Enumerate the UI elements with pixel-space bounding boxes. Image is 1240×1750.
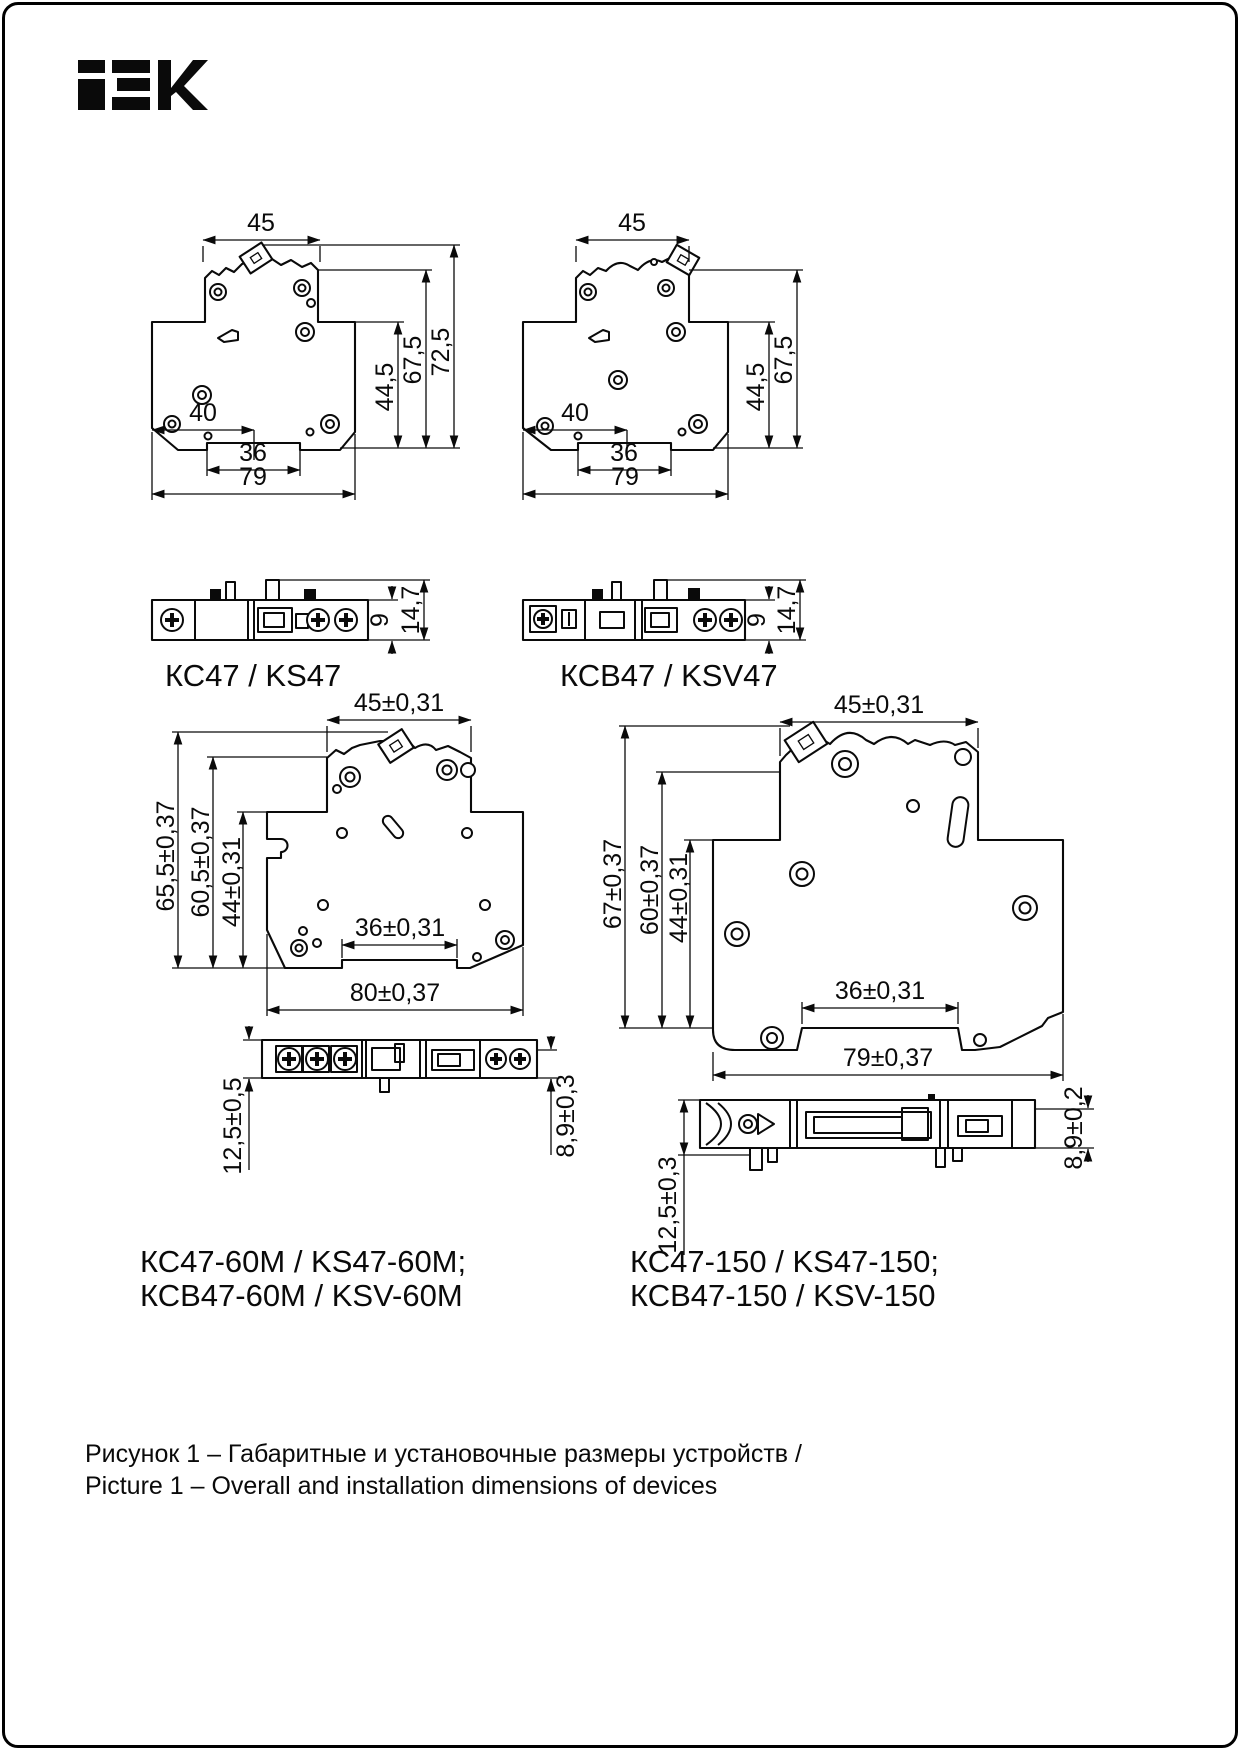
- figure-kc47-150: 45±0,31 67±0,37 60±0,37 44±0,31 36±0,31 …: [599, 691, 1094, 1313]
- dim-lower-height: 44±0,31: [218, 837, 246, 927]
- dim-side-depth: 8,9±0,2: [1060, 1086, 1088, 1169]
- figure-name-kc47-150-line2: КСВ47-150 / KSV-150: [630, 1278, 936, 1313]
- dim-top-width: 45±0,31: [834, 691, 924, 719]
- dim-side-depth: 8,9±0,3: [552, 1074, 580, 1157]
- dim-center-offset: 40: [561, 399, 589, 427]
- dim-total-height: 72,5: [427, 328, 455, 377]
- dim-top-width: 45: [618, 209, 646, 237]
- dim-top-width: 45: [247, 209, 275, 237]
- dim-top-width: 45±0,31: [354, 689, 444, 717]
- dim-lower-height: 44,5: [371, 363, 399, 412]
- dim-side-height: 12,5±0,3: [654, 1156, 682, 1253]
- dim-side-body: 9: [366, 613, 394, 627]
- figure-name-ksv47: КСВ47 / KSV47: [560, 658, 778, 693]
- dim-side-height: 12,5±0,5: [219, 1077, 247, 1174]
- figure-kc47-60m: 45±0,31 65,5±0,37 60,5±0,37 44±0,31 36±0…: [140, 689, 580, 1313]
- figure-ksv47: 45 40 36 79 44,5 67,5: [523, 209, 806, 693]
- figure-name-kc47-60m-line1: КС47-60М / KS47-60M;: [140, 1244, 466, 1279]
- dim-overall-width: 79: [239, 463, 267, 491]
- figure-name-kc47: КС47 / KS47: [165, 658, 341, 693]
- dim-upper-height: 67,5: [770, 336, 798, 385]
- dim-side-body: 9: [743, 613, 771, 627]
- dim-rail-slot: 36±0,31: [355, 914, 445, 942]
- dim-side-total: 14,7: [773, 586, 801, 635]
- datasheet-page: IEK: [0, 0, 1240, 1750]
- dim-side-total: 14,7: [397, 586, 425, 635]
- dim-center-offset: 40: [189, 399, 217, 427]
- caption-ru: Рисунок 1 – Габаритные и установочные ра…: [85, 1440, 802, 1468]
- kc47-150-side-view: 12,5±0,3 8,9±0,2: [654, 1086, 1094, 1255]
- caption-en: Picture 1 – Overall and installation dim…: [85, 1472, 717, 1500]
- dim-overall-width: 80±0,37: [350, 979, 440, 1007]
- dim-total-height: 67±0,37: [599, 839, 627, 929]
- dim-overall-width: 79: [611, 463, 639, 491]
- dim-lower-height: 44,5: [742, 363, 770, 412]
- iek-logo: IEK: [78, 60, 208, 110]
- figure-kc47: 45 40 36 79 44,5 67,5 72,5: [152, 209, 460, 693]
- kc47-60m-side-view: 12,5±0,5 8,9±0,3: [219, 1026, 580, 1175]
- figure-name-kc47-150-line1: КС47-150 / KS47-150;: [630, 1244, 939, 1279]
- dim-upper-height: 60±0,37: [636, 845, 664, 935]
- dimension-drawing-sheet: IEK: [0, 0, 1240, 1750]
- kc47-side-view: 9 14,7: [152, 580, 430, 654]
- dim-overall-width: 79±0,37: [843, 1044, 933, 1072]
- dim-upper-height: 60,5±0,37: [187, 806, 215, 917]
- dim-total-height: 65,5±0,37: [152, 800, 180, 911]
- dim-lower-height: 44±0,31: [665, 853, 693, 943]
- dim-rail-slot: 36±0,31: [835, 977, 925, 1005]
- ksv47-side-view: 9 14,7: [523, 580, 806, 654]
- dim-upper-height: 67,5: [399, 336, 427, 385]
- figure-name-kc47-60m-line2: КСВ47-60М / KSV-60M: [140, 1278, 463, 1313]
